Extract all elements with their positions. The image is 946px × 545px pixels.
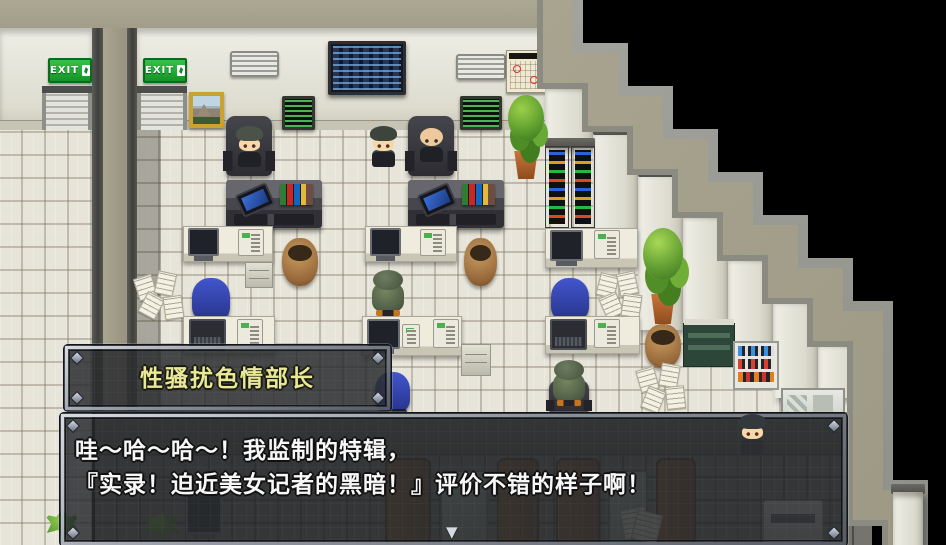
terminal-screen: [285, 99, 312, 127]
wicker-basket: [282, 238, 318, 286]
name-window[interactable]: 性骚扰色情部长: [63, 344, 392, 412]
crt-monitor: [188, 228, 219, 256]
exit-sign: EXIT: [143, 58, 187, 83]
laptop: [550, 319, 587, 350]
desk-phone: [420, 229, 446, 256]
drawer-unit: [245, 262, 273, 288]
dialogue-line-2: 『实录！迫近美女记者的黑暗！』评价不错的样子啊！: [75, 465, 651, 499]
office-chair-blue: [551, 278, 589, 320]
wicker-basket: [645, 324, 681, 368]
terminal-monitor: [282, 96, 315, 130]
npc-feet: [557, 400, 581, 406]
hooded-npc[interactable]: [551, 360, 587, 406]
bottle-shelf: [738, 372, 774, 382]
desk-phone: [433, 319, 459, 348]
wall-painting: [189, 92, 224, 128]
desk-phone: [238, 229, 264, 256]
corner-diamond-icon: [66, 526, 80, 540]
potted-plant: [504, 93, 548, 183]
roller-shutter: [42, 92, 92, 130]
potted-plant: [640, 228, 686, 328]
npc-hair: [370, 126, 397, 141]
npc-hair: [739, 414, 766, 429]
step-wall: [893, 492, 923, 545]
corner-diamond-icon: [371, 391, 385, 405]
npc-hood: [373, 270, 403, 290]
dialogue-line-1: 哇～哈～哈～！我监制的特辑，: [75, 431, 411, 465]
npc-bald-head: [420, 128, 443, 146]
desk-phone: [594, 230, 620, 259]
bald-npc[interactable]: [414, 128, 448, 162]
wicker-basket: [464, 238, 497, 286]
exit-sign: EXIT: [48, 58, 92, 83]
running-man-icon: [82, 65, 90, 76]
terminal-screen: [463, 99, 499, 127]
scattered-papers: [134, 272, 188, 324]
roof-band: [0, 0, 583, 30]
exit-sign-label: EXIT: [145, 65, 174, 76]
office-chair-blue: [192, 278, 230, 320]
desk-phone: [402, 324, 420, 348]
corner-diamond-icon: [827, 526, 841, 540]
server-rack: [545, 146, 569, 228]
speaker-name: 性骚扰色情部长: [64, 359, 391, 393]
bottle-shelf: [738, 346, 774, 356]
plant-pot: [512, 151, 540, 179]
hooded-npc[interactable]: [370, 270, 406, 316]
calendar-mark: [530, 76, 538, 84]
npc-body: [420, 145, 443, 162]
air-conditioner: [456, 54, 506, 80]
game-screen: EXIT EXIT: [0, 0, 946, 545]
seated-npc[interactable]: [232, 126, 266, 167]
exit-sign-label: EXIT: [50, 65, 79, 76]
calendar-mark: [513, 65, 521, 73]
npc-hair: [236, 126, 263, 141]
npc-hood: [554, 360, 584, 380]
bottle-shelf: [738, 359, 774, 369]
drawer-unit: [461, 344, 491, 376]
plant-pot: [649, 294, 677, 324]
message-window[interactable]: 哇～哈～哈～！我监制的特辑， 『实录！迫近美女记者的黑暗！』评价不错的样子啊！ …: [59, 412, 848, 545]
wall-tv: [328, 41, 406, 95]
npc-body: [238, 150, 261, 167]
corner-diamond-icon: [70, 391, 84, 405]
running-man-icon: [177, 65, 185, 76]
crt-monitor: [550, 230, 583, 261]
kitchen-cabinet: [683, 323, 735, 367]
standing-npc[interactable]: [366, 126, 400, 167]
scattered-papers: [596, 272, 644, 320]
vending-machine: [733, 341, 779, 390]
scattered-papers: [636, 364, 692, 414]
server-rack: [571, 146, 595, 228]
roller-shutter: [137, 92, 187, 130]
tv-screen: [333, 46, 401, 90]
desk-phone: [594, 319, 620, 348]
book-row: [462, 184, 495, 205]
corner-diamond-icon: [827, 419, 841, 433]
crt-monitor: [370, 228, 401, 256]
air-conditioner: [230, 51, 279, 77]
continue-icon[interactable]: ▼: [446, 523, 458, 541]
book-row: [280, 184, 313, 205]
npc-body: [372, 150, 395, 167]
terminal-monitor: [460, 96, 502, 130]
